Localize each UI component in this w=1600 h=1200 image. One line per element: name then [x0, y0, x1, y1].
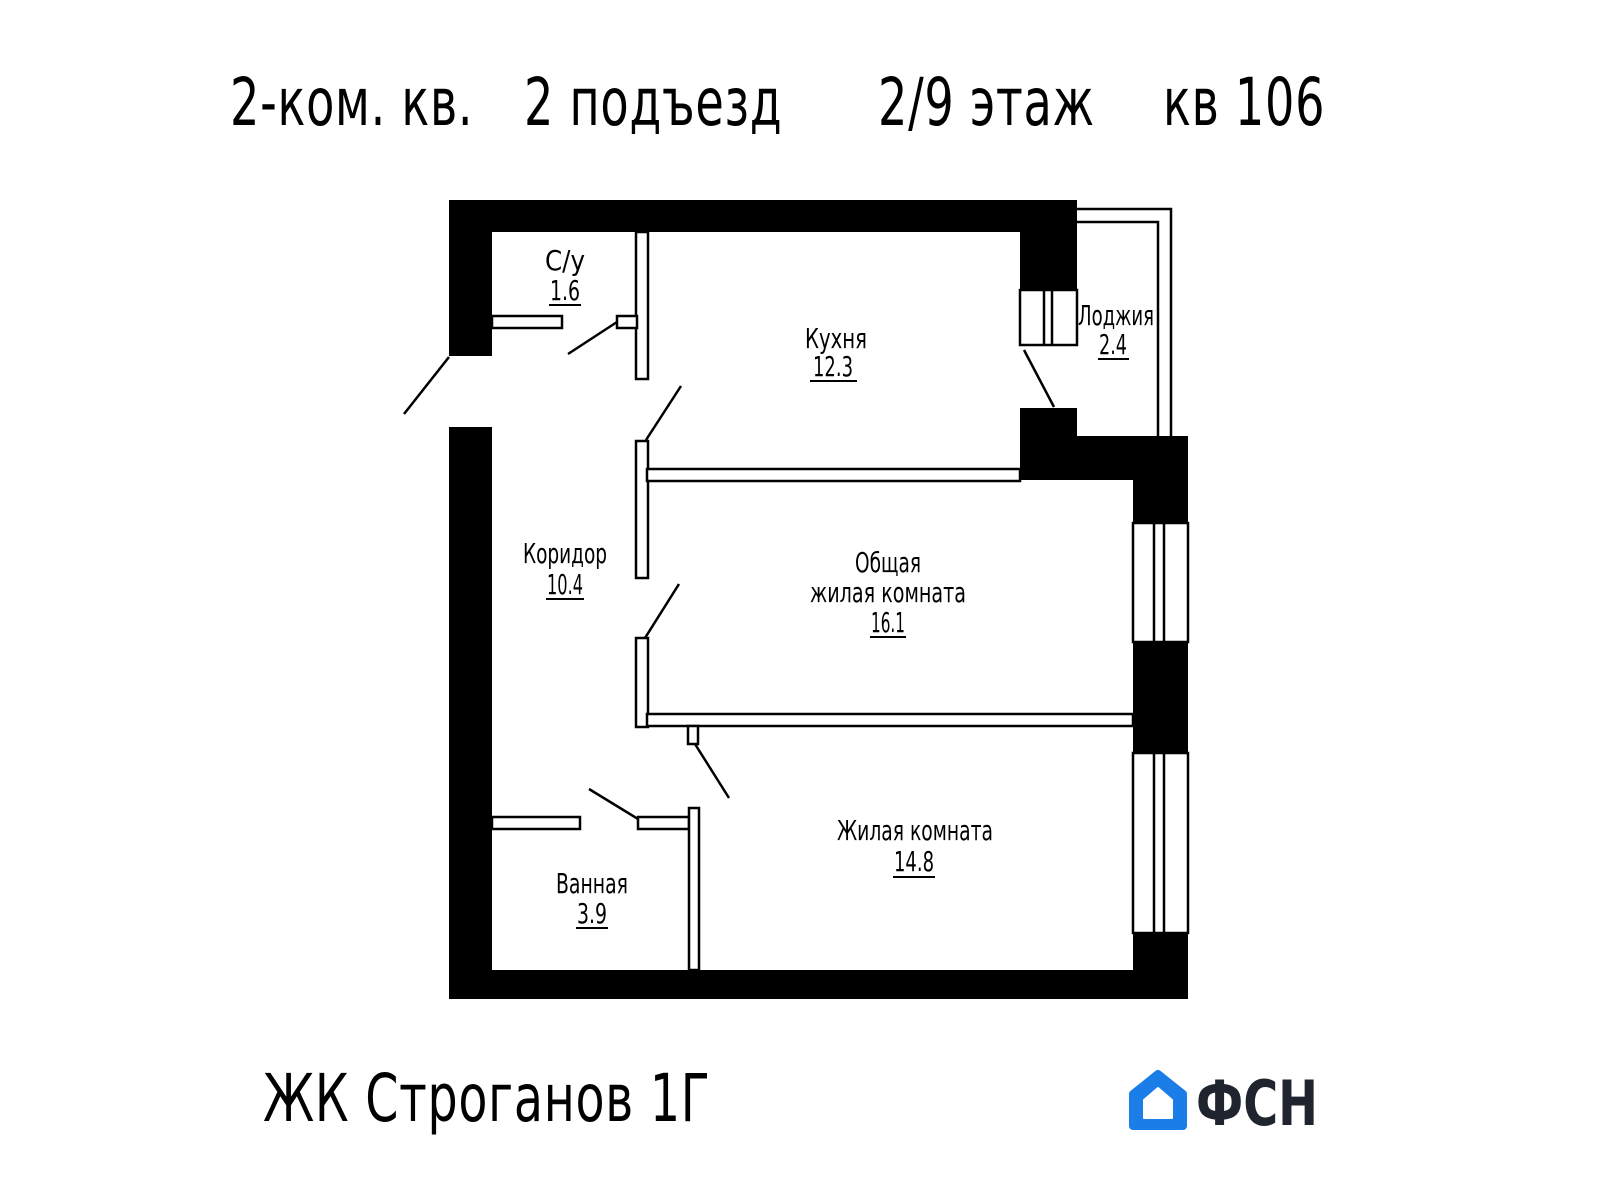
room-bathroom: Ванная 3.9 [556, 867, 628, 930]
bedroom-door-swing [695, 744, 729, 798]
wc-name: С/у [545, 244, 585, 277]
wall-kitchen-loggia-upper [1020, 200, 1077, 290]
bedroom-window-frame [1133, 753, 1188, 933]
partition-wc-bottom [492, 316, 562, 328]
room-wc: С/у 1.6 [545, 244, 585, 307]
partition-kitchen-upper [636, 232, 648, 379]
living-room-window [1133, 523, 1188, 642]
bedroom-window [1133, 753, 1188, 933]
room-bedroom: Жилая комната 14.8 [837, 814, 993, 878]
living-area: 16.1 [871, 606, 905, 639]
floorplan-drawing: С/у 1.6 Кухня 12.3 Лоджия 2.4 Коридор 10… [0, 0, 1600, 1200]
living-name-line2: жилая комната [810, 576, 966, 609]
logo-text: ФСН [1196, 1067, 1318, 1137]
room-kitchen: Кухня 12.3 [805, 322, 867, 383]
partition-wc-jamb [617, 316, 637, 328]
partition-kitchen-lower [636, 441, 648, 578]
living-window-frame [1133, 523, 1188, 642]
partition-room-divider [647, 714, 1133, 726]
wall-right-middle-pier [1133, 642, 1188, 753]
room-corridor: Коридор 10.4 [523, 537, 607, 601]
partition-living-top [647, 469, 1020, 481]
kitchen-area: 12.3 [813, 350, 853, 383]
door-swings [404, 322, 1054, 819]
partition-bathroom-top-left [492, 817, 580, 829]
partition-bedroom-jamb [688, 726, 698, 744]
corridor-area: 10.4 [547, 568, 583, 601]
room-labels: С/у 1.6 Кухня 12.3 Лоджия 2.4 Коридор 10… [523, 244, 1154, 930]
developer-logo: ФСН [1118, 1062, 1348, 1137]
wc-area: 1.6 [550, 274, 580, 307]
wall-left-lower [449, 427, 492, 999]
entrance-door-swing [404, 357, 449, 414]
wall-left-upper [449, 200, 492, 356]
living-door-swing [645, 584, 679, 638]
bathroom-door-swing [589, 789, 638, 819]
kitchen-balcony-window [1020, 290, 1077, 345]
corridor-name: Коридор [523, 537, 607, 570]
wall-right-lower-pier [1133, 933, 1188, 999]
bathroom-name: Ванная [556, 867, 628, 900]
wall-right-upper-pier [1133, 436, 1188, 523]
loggia-area: 2.4 [1099, 328, 1127, 361]
partition-bathroom-top-right [638, 817, 689, 829]
living-name-line1: Общая [855, 546, 921, 579]
kitchen-door-swing [646, 386, 681, 440]
bedroom-name: Жилая комната [837, 814, 993, 847]
windows [1020, 290, 1188, 933]
loggia-door-swing [1024, 350, 1054, 407]
bedroom-area: 14.8 [894, 845, 934, 878]
balcony-window-frame [1020, 290, 1077, 345]
house-icon [1133, 1074, 1183, 1126]
wall-top [449, 200, 1077, 232]
floorplan-page: 2-ком. кв. 2 подъезд 2/9 этаж кв 106 [0, 0, 1600, 1200]
wall-bottom [449, 970, 1188, 999]
room-living: Общая жилая комната 16.1 [810, 546, 966, 639]
project-name-label: ЖК Строганов 1Г [263, 1066, 710, 1132]
bathroom-area: 3.9 [577, 897, 607, 930]
room-loggia: Лоджия 2.4 [1078, 299, 1154, 361]
wc-door-swing [568, 322, 617, 354]
partition-bathroom-right [689, 808, 699, 970]
